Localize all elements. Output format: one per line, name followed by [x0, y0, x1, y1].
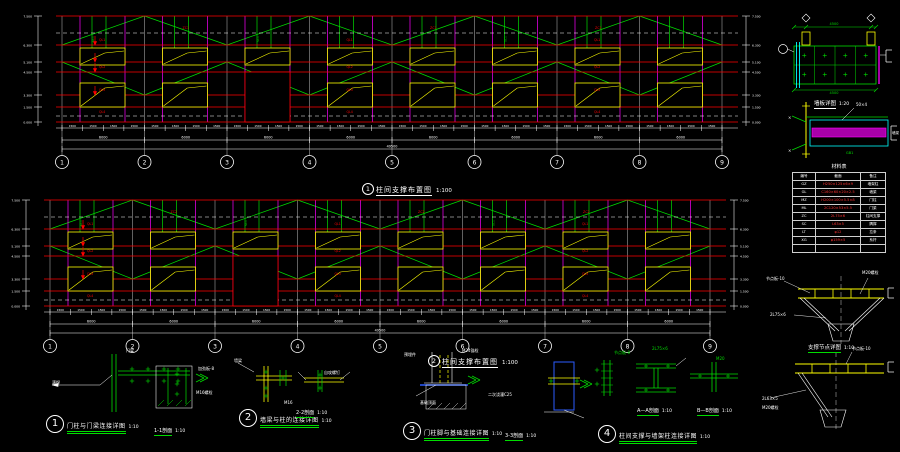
svg-text:2: 2	[143, 159, 147, 166]
svg-text:4: 4	[296, 343, 300, 350]
svg-text:1500: 1500	[614, 308, 621, 312]
detail-scale: 1:10	[700, 435, 710, 440]
svg-text:1500: 1500	[387, 308, 394, 312]
svg-text:4.500: 4.500	[23, 70, 32, 74]
svg-text:5: 5	[390, 159, 394, 166]
svg-text:1500: 1500	[172, 124, 179, 128]
svg-text:M20螺栓: M20螺栓	[862, 269, 879, 275]
svg-text:1500: 1500	[584, 124, 591, 128]
svg-text:1500: 1500	[511, 308, 518, 312]
svg-text:1500: 1500	[275, 124, 282, 128]
svg-text:1500: 1500	[531, 308, 538, 312]
svg-text:8: 8	[638, 159, 642, 166]
svg-text:6.300: 6.300	[752, 43, 761, 47]
detail-title: 墙梁与柱的连接详图	[260, 417, 319, 428]
svg-text:1500: 1500	[346, 308, 353, 312]
svg-text:1500: 1500	[564, 124, 571, 128]
detail-number: 4	[598, 425, 616, 443]
svg-text:墙梁: 墙梁	[892, 130, 900, 135]
svg-text:1500: 1500	[69, 124, 76, 128]
svg-text:满焊: 满焊	[52, 379, 60, 385]
detail-scale: 1:10	[322, 419, 332, 424]
svg-text:5.100: 5.100	[752, 60, 761, 64]
svg-text:6.300: 6.300	[23, 43, 32, 47]
svg-text:QL2: QL2	[335, 249, 341, 253]
svg-text:QL2: QL2	[99, 65, 105, 69]
svg-text:6000: 6000	[676, 136, 685, 140]
svg-text:6: 6	[473, 159, 477, 166]
svg-text:1500: 1500	[646, 124, 653, 128]
svg-text:6000: 6000	[334, 320, 343, 324]
svg-text:1500: 1500	[481, 124, 488, 128]
svg-text:2L75×6: 2L75×6	[652, 346, 668, 351]
svg-text:QL4: QL4	[99, 110, 105, 114]
svg-text:5.100: 5.100	[23, 60, 32, 64]
svg-text:QL1: QL1	[347, 38, 353, 42]
svg-text:1500: 1500	[77, 308, 84, 312]
detail-scale: 1:10	[492, 432, 502, 437]
svg-text:QL3: QL3	[87, 272, 93, 276]
svg-text:1500: 1500	[263, 308, 270, 312]
svg-text:1500: 1500	[98, 308, 105, 312]
svg-text:M20螺栓: M20螺栓	[762, 404, 779, 410]
svg-text:QL4: QL4	[594, 110, 600, 114]
svg-text:50×4: 50×4	[856, 102, 867, 107]
svg-text:ZC1: ZC1	[183, 26, 189, 30]
svg-text:1500: 1500	[428, 308, 435, 312]
svg-text:1500: 1500	[139, 308, 146, 312]
svg-text:1500: 1500	[626, 124, 633, 128]
svg-text:门梁: 门梁	[126, 347, 134, 353]
top-elevation-caption: 1柱间支撑布置图1:100	[362, 177, 452, 196]
svg-text:1500: 1500	[655, 308, 662, 312]
detail-4-section-a-caption: A—A剖面1:10	[637, 397, 672, 416]
svg-text:QL3: QL3	[594, 88, 600, 92]
svg-text:节点板-8: 节点板-8	[614, 349, 630, 355]
svg-text:1500: 1500	[110, 124, 117, 128]
svg-text:1500: 1500	[378, 124, 385, 128]
svg-text:1.500: 1.500	[740, 289, 749, 293]
svg-text:7.500: 7.500	[752, 14, 761, 18]
svg-text:6000: 6000	[417, 320, 426, 324]
svg-text:6000: 6000	[499, 320, 508, 324]
svg-text:1500: 1500	[131, 124, 138, 128]
svg-text:1500: 1500	[234, 124, 241, 128]
svg-text:1.500: 1.500	[23, 105, 32, 109]
caption-title: 柱间支撑布置图	[376, 186, 432, 196]
svg-text:基础顶面: 基础顶面	[420, 399, 436, 405]
svg-text:7.500: 7.500	[23, 14, 32, 18]
svg-text:ZC2: ZC2	[583, 210, 589, 214]
svg-text:二次浇灌C25: 二次浇灌C25	[488, 391, 512, 397]
svg-text:3: 3	[225, 159, 229, 166]
svg-text:7: 7	[543, 343, 547, 350]
svg-text:GB1: GB1	[846, 151, 853, 155]
svg-text:6000: 6000	[429, 136, 438, 140]
svg-text:1500: 1500	[366, 308, 373, 312]
svg-text:6000: 6000	[181, 136, 190, 140]
caption-title: 柱间支撑布置图	[442, 358, 498, 368]
caption-number: 1	[362, 183, 374, 195]
svg-text:4: 4	[308, 159, 312, 166]
svg-text:1500: 1500	[242, 308, 249, 312]
svg-text:5.100: 5.100	[11, 244, 20, 248]
svg-text:1: 1	[48, 343, 52, 350]
svg-text:1500: 1500	[304, 308, 311, 312]
svg-text:预埋件: 预埋件	[404, 351, 416, 357]
svg-text:1500: 1500	[440, 124, 447, 128]
material-table-grid: 编号截面备注GZH250×125×6×9墙架柱GLC160×60×20×2.5墙…	[792, 172, 886, 253]
svg-text:0.000: 0.000	[752, 120, 761, 124]
detail-number: 3	[403, 422, 421, 440]
svg-text:1500: 1500	[502, 124, 509, 128]
svg-text:9: 9	[708, 343, 712, 350]
svg-text:1500: 1500	[254, 124, 261, 128]
detail-title: 柱间支撑与墙架柱连接详图	[619, 433, 697, 444]
svg-text:6000: 6000	[264, 136, 273, 140]
svg-text:SC1: SC1	[504, 36, 508, 42]
svg-text:49500: 49500	[387, 145, 398, 149]
svg-text:1500: 1500	[337, 124, 344, 128]
svg-text:节点板-10: 节点板-10	[766, 275, 785, 281]
material-table-title: 材料表	[792, 163, 886, 170]
svg-text:1500: 1500	[181, 308, 188, 312]
svg-text:1500: 1500	[222, 308, 229, 312]
caption-number: 2	[428, 355, 440, 367]
svg-text:6.300: 6.300	[740, 227, 749, 231]
svg-text:QL2: QL2	[347, 65, 353, 69]
cad-drawing: 7.5007.5006.3006.3005.1005.1004.5004.500…	[0, 0, 900, 452]
svg-text:1500: 1500	[57, 308, 64, 312]
svg-text:4.500: 4.500	[740, 254, 749, 258]
svg-text:1500: 1500	[296, 124, 303, 128]
svg-text:6000: 6000	[594, 136, 603, 140]
svg-text:1500: 1500	[316, 124, 323, 128]
svg-text:×: ×	[788, 148, 791, 153]
material-table: 材料表 编号截面备注GZH250×125×6×9墙架柱GLC160×60×20×…	[792, 163, 886, 253]
svg-text:1: 1	[60, 159, 64, 166]
detail-title: 门柱与门梁连接详图	[67, 423, 126, 434]
svg-text:2L63×5: 2L63×5	[762, 396, 778, 401]
svg-text:节点板-10: 节点板-10	[852, 345, 871, 351]
svg-text:3: 3	[213, 343, 217, 350]
svg-text:ZC2: ZC2	[418, 210, 424, 214]
svg-text:6.300: 6.300	[11, 227, 20, 231]
svg-text:SC1: SC1	[256, 36, 260, 42]
svg-text:QL1: QL1	[99, 38, 105, 42]
svg-text:QL1: QL1	[582, 222, 588, 226]
detail-2-section-caption: 2-2剖面1:10	[296, 399, 327, 418]
svg-text:QL4: QL4	[347, 110, 353, 114]
svg-text:3.300: 3.300	[752, 93, 761, 97]
svg-text:1500: 1500	[708, 124, 715, 128]
svg-text:1500: 1500	[119, 308, 126, 312]
svg-text:QL3: QL3	[347, 88, 353, 92]
svg-text:1500: 1500	[284, 308, 291, 312]
cad-sheet: 7.5007.5006.3006.3005.1005.1004.5004.500…	[0, 0, 900, 452]
node-detail-caption: 支撑节点详图1:10	[808, 334, 854, 353]
svg-text:M16: M16	[284, 400, 293, 405]
detail-1	[52, 354, 208, 412]
svg-text:1500: 1500	[407, 308, 414, 312]
svg-text:9: 9	[720, 159, 724, 166]
svg-text:49500: 49500	[375, 329, 386, 333]
svg-text:1500: 1500	[151, 124, 158, 128]
svg-text:3.300: 3.300	[740, 277, 749, 281]
svg-text:1500: 1500	[213, 124, 220, 128]
svg-text:1500: 1500	[676, 308, 683, 312]
svg-text:1500: 1500	[419, 124, 426, 128]
detail-4-caption: 4柱间支撑与墙架柱连接详图1:10	[598, 423, 710, 443]
svg-text:0.000: 0.000	[740, 304, 749, 308]
svg-text:4.500: 4.500	[752, 70, 761, 74]
svg-text:1500: 1500	[667, 124, 674, 128]
svg-text:QL2: QL2	[87, 249, 93, 253]
svg-text:1500: 1500	[688, 124, 695, 128]
svg-text:1500: 1500	[552, 308, 559, 312]
svg-text:6000: 6000	[252, 320, 261, 324]
detail-4	[595, 358, 738, 396]
svg-text:6000: 6000	[346, 136, 355, 140]
svg-text:1500: 1500	[160, 308, 167, 312]
svg-text:1500: 1500	[543, 124, 550, 128]
detail-3-section-caption: 3-3剖面1:10	[505, 422, 536, 441]
detail-title: 门柱脚与基础连接详图	[424, 430, 489, 441]
svg-text:1500: 1500	[593, 308, 600, 312]
svg-text:7: 7	[555, 159, 559, 166]
svg-text:1.500: 1.500	[752, 105, 761, 109]
svg-text:1500: 1500	[201, 308, 208, 312]
svg-text:ZC1: ZC1	[595, 26, 601, 30]
svg-text:QL4: QL4	[335, 294, 341, 298]
svg-text:5: 5	[378, 343, 382, 350]
svg-text:6000: 6000	[582, 320, 591, 324]
girt-section-detail: ××	[788, 102, 897, 158]
svg-text:6000: 6000	[664, 320, 673, 324]
svg-text:4.500: 4.500	[11, 254, 20, 258]
svg-text:6000: 6000	[169, 320, 178, 324]
svg-text:3.300: 3.300	[11, 277, 20, 281]
svg-text:QL3: QL3	[582, 272, 588, 276]
detail-4-section-b-caption: B—B剖面1:10	[697, 397, 732, 416]
svg-text:1500: 1500	[490, 308, 497, 312]
detail-2	[238, 363, 350, 402]
svg-text:M16螺栓: M16螺栓	[196, 389, 213, 395]
svg-text:QL1: QL1	[594, 38, 600, 42]
svg-text:M20: M20	[716, 356, 725, 361]
svg-text:1500: 1500	[461, 124, 468, 128]
svg-text:QL3: QL3	[335, 272, 341, 276]
svg-text:QL4: QL4	[87, 294, 93, 298]
bottom-elevation-caption: 2柱间支撑布置图1:100	[428, 349, 518, 368]
svg-text:2L75×6: 2L75×6	[770, 312, 786, 317]
caption-scale: 1:100	[436, 188, 452, 194]
detail-1-section-caption: 1-1剖面1:10	[154, 417, 185, 436]
svg-text:1500: 1500	[523, 124, 530, 128]
svg-text:SC1: SC1	[91, 36, 95, 42]
caption-scale: 1:100	[502, 360, 518, 366]
svg-text:7.500: 7.500	[11, 198, 20, 202]
svg-text:0.000: 0.000	[23, 120, 32, 124]
detail-scale: 1:10	[129, 425, 139, 430]
svg-text:1500: 1500	[399, 124, 406, 128]
svg-text:1500: 1500	[358, 124, 365, 128]
svg-text:1500: 1500	[572, 308, 579, 312]
svg-text:1500: 1500	[89, 124, 96, 128]
svg-text:3.300: 3.300	[23, 93, 32, 97]
svg-text:4500: 4500	[830, 22, 839, 26]
bracing-node-detail-2	[770, 352, 894, 430]
detail-number: 1	[46, 415, 64, 433]
svg-text:QL1: QL1	[87, 222, 93, 226]
svg-text:1500: 1500	[325, 308, 332, 312]
svg-text:1500: 1500	[605, 124, 612, 128]
svg-text:QL2: QL2	[594, 65, 600, 69]
svg-text:0.000: 0.000	[11, 304, 20, 308]
svg-text:加劲板-8: 加劲板-8	[198, 365, 214, 371]
svg-text:6000: 6000	[511, 136, 520, 140]
svg-text:×: ×	[788, 115, 791, 120]
svg-text:ZC1: ZC1	[430, 26, 436, 30]
svg-text:QL2: QL2	[582, 249, 588, 253]
svg-text:SC1: SC1	[492, 220, 496, 226]
svg-text:1500: 1500	[449, 308, 456, 312]
svg-text:QL4: QL4	[582, 294, 588, 298]
svg-text:QL3: QL3	[99, 88, 105, 92]
bottom-elevation: 7.5007.5006.3006.3005.1005.1004.5004.500…	[11, 198, 748, 352]
detail-number: 2	[239, 409, 257, 427]
detail-1-caption: 1门柱与门梁连接详图1:10	[46, 413, 139, 433]
svg-text:QL1: QL1	[335, 222, 341, 226]
svg-text:6000: 6000	[99, 136, 108, 140]
detail-3-caption: 3门柱脚与基础连接详图1:10	[403, 420, 502, 440]
svg-text:5.100: 5.100	[740, 244, 749, 248]
svg-text:自攻螺钉: 自攻螺钉	[324, 369, 340, 375]
svg-text:6000: 6000	[87, 320, 96, 324]
svg-text:SC1: SC1	[79, 220, 83, 226]
svg-text:ZC2: ZC2	[171, 210, 177, 214]
svg-text:1500: 1500	[469, 308, 476, 312]
svg-text:1500: 1500	[193, 124, 200, 128]
svg-text:SC1: SC1	[244, 220, 248, 226]
svg-text:1500: 1500	[696, 308, 703, 312]
svg-text:1.500: 1.500	[11, 289, 20, 293]
top-elevation: 7.5007.5006.3006.3005.1005.1004.5004.500…	[23, 14, 760, 168]
svg-text:7.500: 7.500	[740, 198, 749, 202]
svg-text:1500: 1500	[634, 308, 641, 312]
wall-panel-caption: 墙板详图1:20	[814, 90, 849, 109]
svg-text:墙梁: 墙梁	[234, 357, 242, 363]
